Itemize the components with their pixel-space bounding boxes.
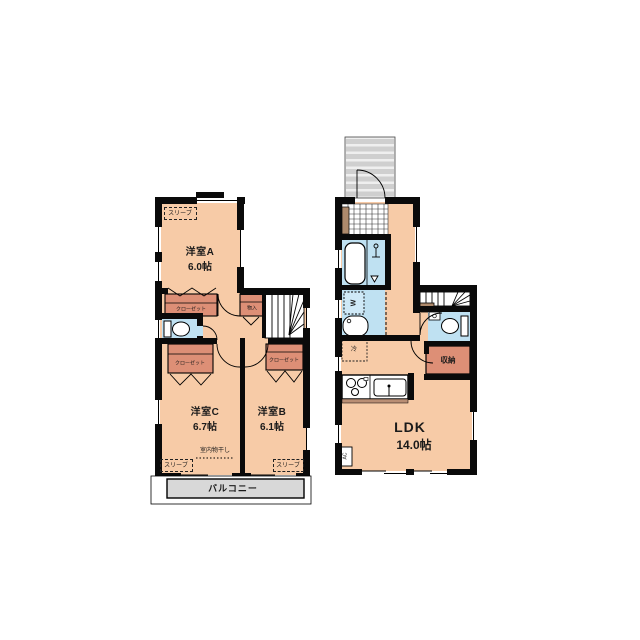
floor1-toilet-room: [428, 312, 470, 341]
room-a-name-label: 洋室A: [186, 248, 215, 258]
shoe-cabinet: [342, 207, 349, 234]
sink-icon: [374, 379, 406, 396]
washer-label: W: [351, 300, 358, 307]
room-b-name-label: 洋室B: [258, 408, 287, 418]
washroom: [342, 290, 386, 336]
closet-c: [168, 344, 213, 373]
ac-label: AC: [344, 453, 349, 460]
floor2-toilet-room: [162, 318, 203, 339]
closet-a-label: クローゼット: [176, 308, 206, 313]
room-c-size-label: 6.7帖: [193, 423, 217, 433]
balcony-label: バルコニー: [208, 485, 258, 494]
floor2-stairs: [265, 294, 304, 338]
entrance-porch-steps: [345, 137, 395, 198]
room-b-size-label: 6.1帖: [260, 423, 284, 433]
floor2-plan: [151, 192, 311, 504]
closet-c-label: クローゼット: [175, 362, 205, 367]
room-a-size-label: 6.0帖: [188, 263, 212, 273]
ldk-name-label: LDK: [394, 420, 426, 434]
bathroom: [342, 240, 385, 286]
indoor-drying-label: 室内物干し: [200, 448, 230, 454]
kitchen: [342, 375, 408, 403]
sleeve-label-a: スリーブ: [168, 211, 192, 217]
bathtub-icon: [345, 243, 365, 284]
toilet-icon: [164, 321, 190, 337]
floorplan-canvas: 洋室A 6.0帖 洋室C 6.7帖 洋室B 6.1帖 LDK 14.0帖 クロー…: [0, 0, 640, 640]
sleeve-label-b: スリーブ: [276, 463, 300, 469]
sleeve-label-c: スリーブ: [164, 463, 188, 469]
washbasin-icon: [343, 316, 368, 336]
ldk-size-label: 14.0帖: [396, 439, 431, 451]
closet-a: [165, 294, 217, 316]
entrance-genkan: [342, 204, 388, 236]
floorplan-drawing: [0, 0, 640, 640]
storage-label: 収納: [441, 356, 456, 364]
fridge-label: 冷: [351, 347, 357, 353]
room-c-name-label: 洋室C: [191, 408, 220, 418]
counter-edge: [342, 399, 408, 403]
small-storage-label: 物入: [247, 307, 257, 312]
closet-b-label: クローゼット: [269, 359, 299, 364]
